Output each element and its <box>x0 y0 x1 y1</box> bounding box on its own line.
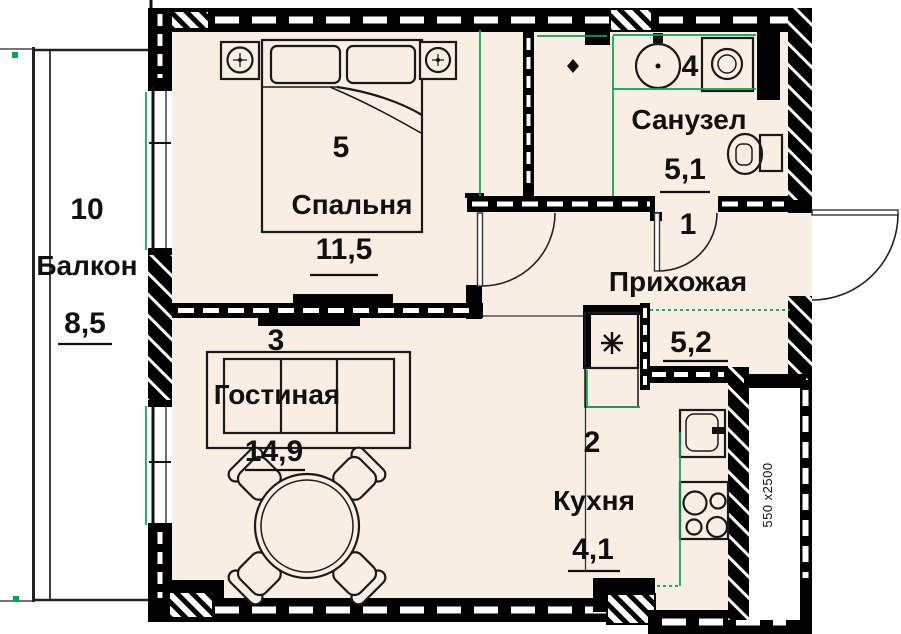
room-name: Кухня <box>553 485 635 516</box>
tap-icon <box>712 427 725 434</box>
room-area: 5,2 <box>670 326 712 359</box>
entry-door <box>812 210 898 300</box>
dining-table <box>255 474 359 578</box>
room-area: 8,5 <box>64 307 106 340</box>
room-number: 3 <box>268 324 285 357</box>
room-number: 10 <box>70 193 103 226</box>
insulation-block <box>169 592 213 618</box>
bedroom-window <box>148 84 172 255</box>
room-number: 4 <box>682 50 699 83</box>
room-number: 5 <box>333 131 350 164</box>
room-area: 11,5 <box>316 233 373 266</box>
insulation-block <box>610 9 652 31</box>
wall-pier <box>148 251 172 404</box>
room-area: 4,1 <box>572 533 614 566</box>
sliding-door-panel <box>293 294 393 304</box>
nightstand-left <box>221 42 259 79</box>
nightstand-right <box>420 42 456 79</box>
floor-plan-drawing: 10 Балкон 8,5 5 Спальня 11,5 4 Санузел 5… <box>0 0 901 634</box>
shaft-dimension-label: 550 x2500 <box>760 462 775 527</box>
survey-mark-top <box>12 52 18 58</box>
room-area: 14,9 <box>245 435 303 468</box>
insulation-block <box>167 11 209 29</box>
label-balcony: 10 Балкон 8,5 <box>36 193 137 344</box>
living-room-window <box>148 400 172 530</box>
room-name: Прихожая <box>609 266 747 297</box>
survey-mark-bottom <box>13 596 19 602</box>
asterisk-icon <box>601 332 623 354</box>
room-name: Балкон <box>36 250 137 281</box>
room-number: 1 <box>680 208 697 241</box>
room-number: 2 <box>584 426 601 459</box>
kitchen-shaft-wall <box>728 367 749 620</box>
insulation-block <box>607 594 655 624</box>
room-name: Санузел <box>631 104 746 135</box>
room-area: 5,1 <box>664 153 706 186</box>
room-name: Спальня <box>292 189 413 220</box>
room-name: Гостиная <box>214 379 341 410</box>
floor-plan: 10 Балкон 8,5 5 Спальня 11,5 4 Санузел 5… <box>0 0 901 634</box>
